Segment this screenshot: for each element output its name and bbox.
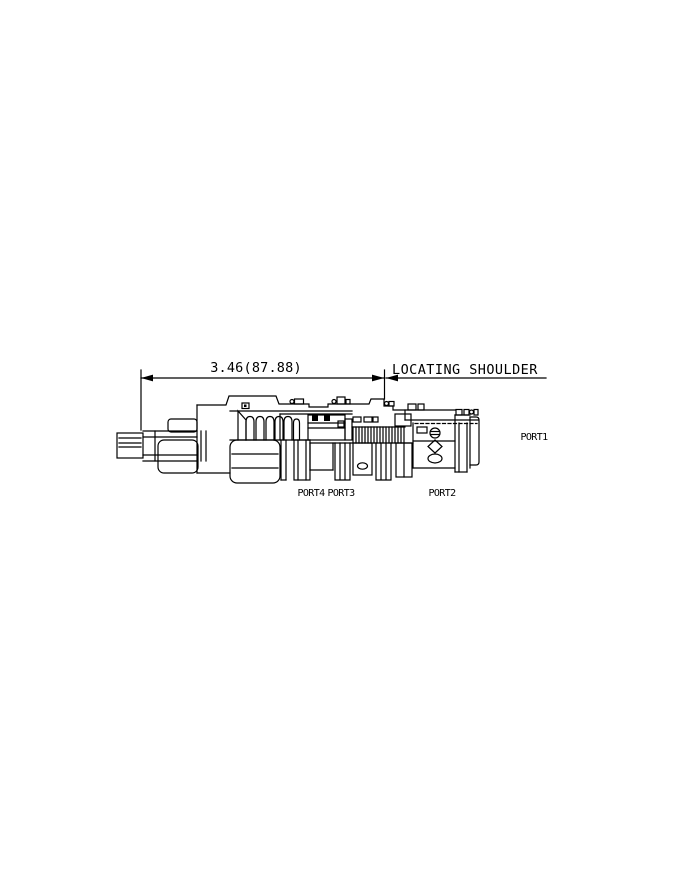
dimension-annotations: 3.46(87.88) LOCATING SHOULDER xyxy=(141,360,546,430)
adjustment-stem xyxy=(117,431,197,461)
spring xyxy=(238,411,300,440)
dimension-label: 3.46(87.88) xyxy=(210,360,302,376)
port2-label: PORT2 xyxy=(428,488,456,499)
hex-body xyxy=(230,440,280,483)
adjustment-cap xyxy=(197,405,230,473)
cross-hole xyxy=(428,454,442,463)
drawing-canvas: 3.46(87.88) LOCATING SHOULDER PORT1 PORT… xyxy=(0,0,700,869)
port1-label: PORT1 xyxy=(520,432,548,443)
dimension-arrow-right xyxy=(372,375,384,382)
port3-label: PORT3 xyxy=(327,488,355,499)
groove-section xyxy=(310,443,413,470)
jam-nut xyxy=(158,419,198,473)
port4-label: PORT4 xyxy=(297,488,325,499)
top-screw-bumps xyxy=(242,397,424,410)
thread-hatch xyxy=(352,427,405,443)
valve-drawing: 3.46(87.88) LOCATING SHOULDER PORT1 PORT… xyxy=(0,0,700,869)
valve-body xyxy=(117,396,479,483)
o-ring xyxy=(430,428,440,438)
spacer-bands-left xyxy=(281,440,310,480)
nose-tip xyxy=(455,410,479,473)
dimension-arrow-left xyxy=(141,375,153,382)
mid-lands xyxy=(335,414,412,480)
seat-diamond xyxy=(428,440,442,453)
locating-shoulder-label: LOCATING SHOULDER xyxy=(392,362,538,378)
